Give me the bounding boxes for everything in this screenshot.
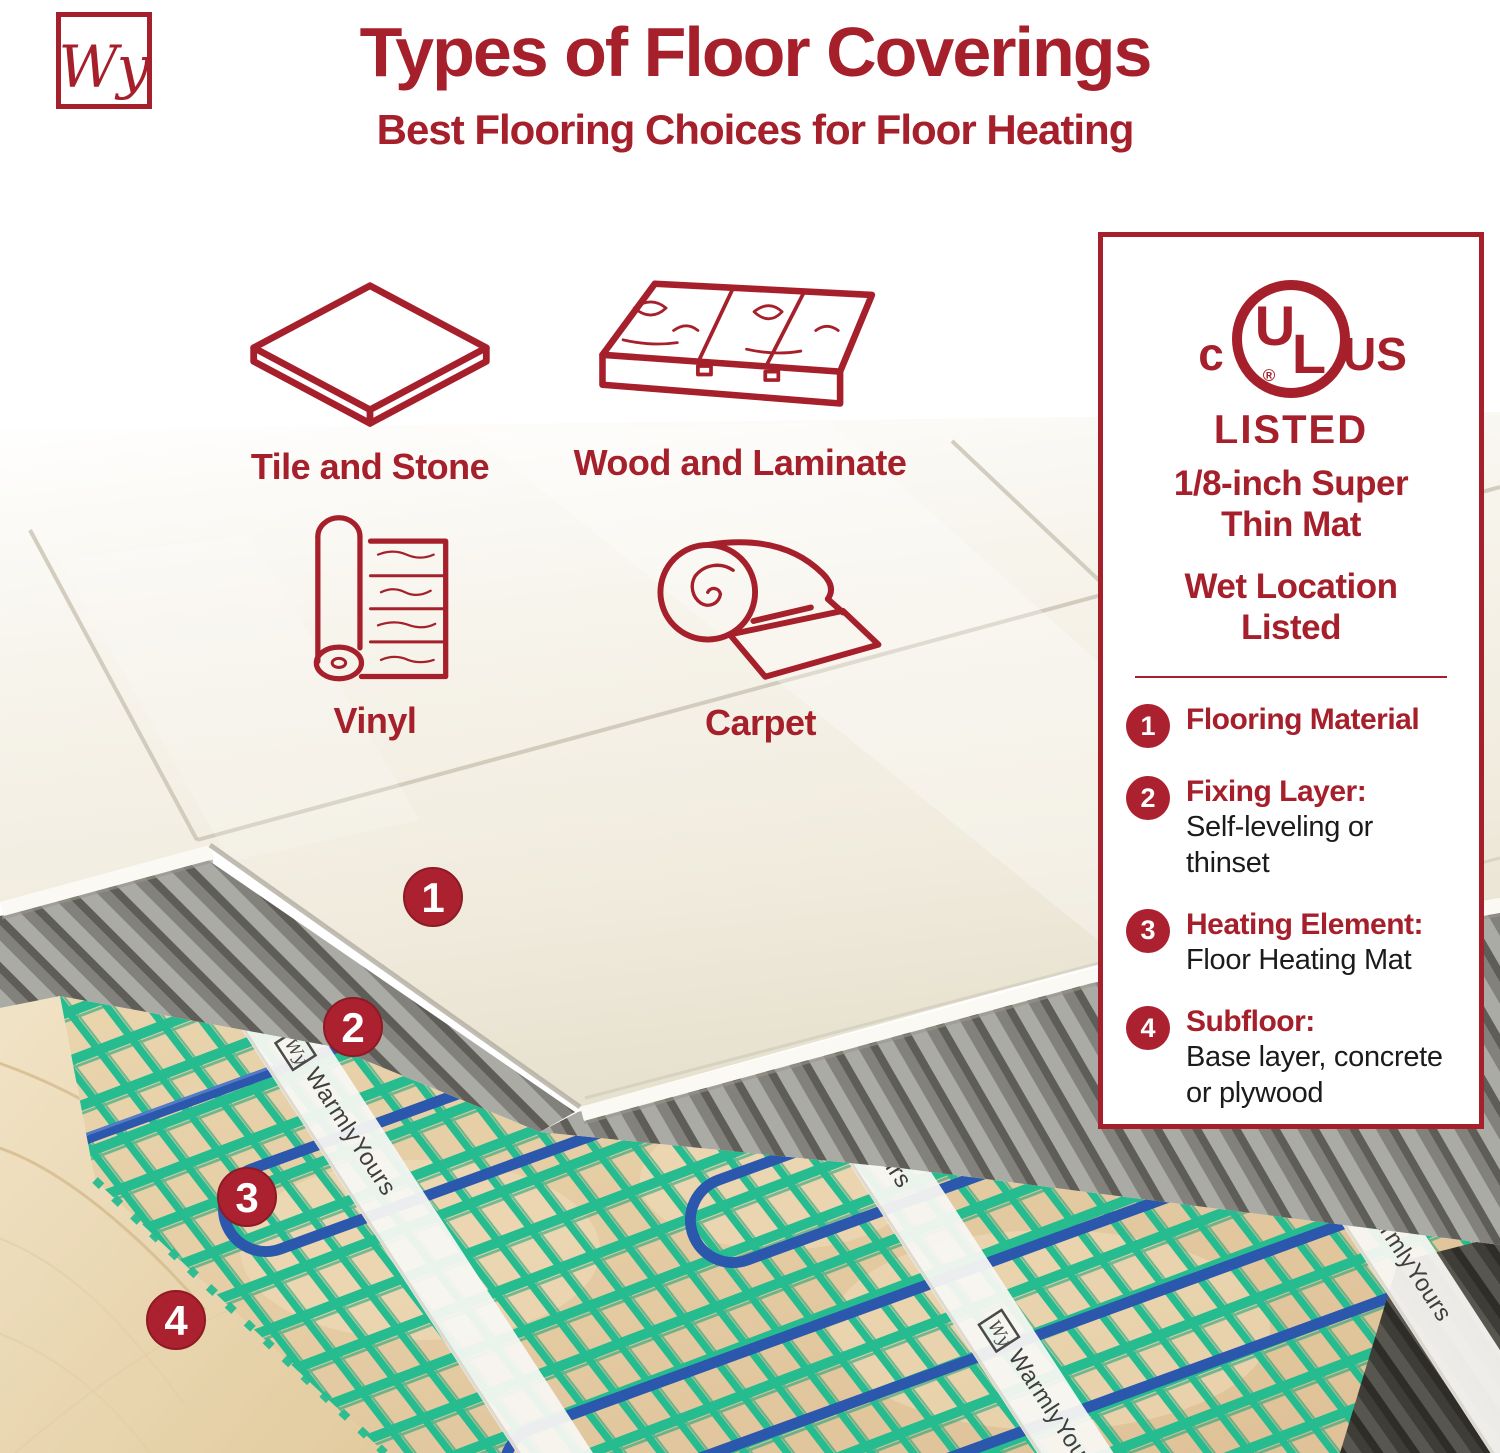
legend-label: Flooring Material	[1186, 702, 1419, 738]
cul-us-listed-mark: c US U L ® LISTED	[1141, 257, 1441, 443]
flooring-type-wood-laminate: Wood and Laminate	[550, 272, 930, 484]
flooring-type-label: Wood and Laminate	[550, 442, 930, 484]
layer-legend: 1 Flooring Material 2 Fixing Layer: Self…	[1126, 702, 1456, 1111]
vinyl-roll-icon	[291, 502, 459, 690]
ul-registered-symbol: ®	[1263, 366, 1276, 385]
legend-description: Self-leveling or thinset	[1186, 810, 1456, 881]
svg-text:1: 1	[421, 874, 444, 921]
legend-item-flooring-material: 1 Flooring Material	[1126, 702, 1456, 748]
tile-stone-icon	[244, 276, 496, 436]
ul-u-letter: U	[1255, 294, 1295, 357]
warmlyyours-logo-text: Wy	[58, 38, 149, 96]
flooring-type-vinyl: Vinyl	[240, 502, 510, 742]
legend-item-heating-element: 3 Heating Element: Floor Heating Mat	[1126, 907, 1456, 978]
ul-us-text: US	[1343, 328, 1407, 380]
feature-wet-location: Wet Location Listed	[1166, 566, 1416, 649]
ul-listed-text: LISTED	[1214, 406, 1368, 443]
legend-item-subfloor: 4 Subfloor: Base layer, concrete or plyw…	[1126, 1004, 1456, 1111]
flooring-type-carpet: Carpet	[588, 506, 933, 744]
feature-thin-mat: 1/8-inch Super Thin Mat	[1146, 463, 1436, 546]
svg-text:3: 3	[235, 1174, 258, 1221]
legend-number-badge: 4	[1126, 1006, 1170, 1050]
page-title: Types of Floor Coverings	[160, 12, 1350, 92]
legend-label: Fixing Layer:	[1186, 774, 1456, 810]
legend-number-badge: 1	[1126, 704, 1170, 748]
flooring-type-label: Vinyl	[240, 700, 510, 742]
flooring-type-label: Carpet	[588, 702, 933, 744]
flooring-type-tile-stone: Tile and Stone	[210, 276, 530, 488]
legend-label: Subfloor:	[1186, 1004, 1456, 1040]
marker-2: 2	[324, 998, 382, 1056]
legend-number-badge: 3	[1126, 909, 1170, 953]
marker-1: 1	[404, 868, 462, 926]
ul-c-text: c	[1198, 328, 1224, 380]
legend-number-badge: 2	[1126, 776, 1170, 820]
panel-divider	[1135, 676, 1447, 678]
legend-description: Floor Heating Mat	[1186, 943, 1423, 978]
ul-l-letter: L	[1292, 322, 1326, 385]
marker-3: 3	[218, 1168, 276, 1226]
legend-description: Base layer, concrete or plywood	[1186, 1040, 1456, 1111]
legend-item-fixing-layer: 2 Fixing Layer: Self-leveling or thinset	[1126, 774, 1456, 881]
carpet-roll-icon	[630, 506, 892, 692]
page-subtitle: Best Flooring Choices for Floor Heating	[160, 106, 1350, 154]
certification-panel: c US U L ® LISTED 1/8-inch Super Thin Ma…	[1098, 232, 1484, 1129]
warmlyyours-logo: Wy	[56, 12, 152, 109]
svg-text:4: 4	[164, 1297, 188, 1344]
legend-label: Heating Element:	[1186, 907, 1423, 943]
svg-text:2: 2	[341, 1004, 364, 1051]
wood-laminate-icon	[595, 272, 885, 432]
marker-4: 4	[147, 1291, 205, 1349]
flooring-type-label: Tile and Stone	[210, 446, 530, 488]
infographic-canvas: Wy WarmlyYours Wy WarmlyYours Wy WarmlyY…	[0, 0, 1500, 1453]
